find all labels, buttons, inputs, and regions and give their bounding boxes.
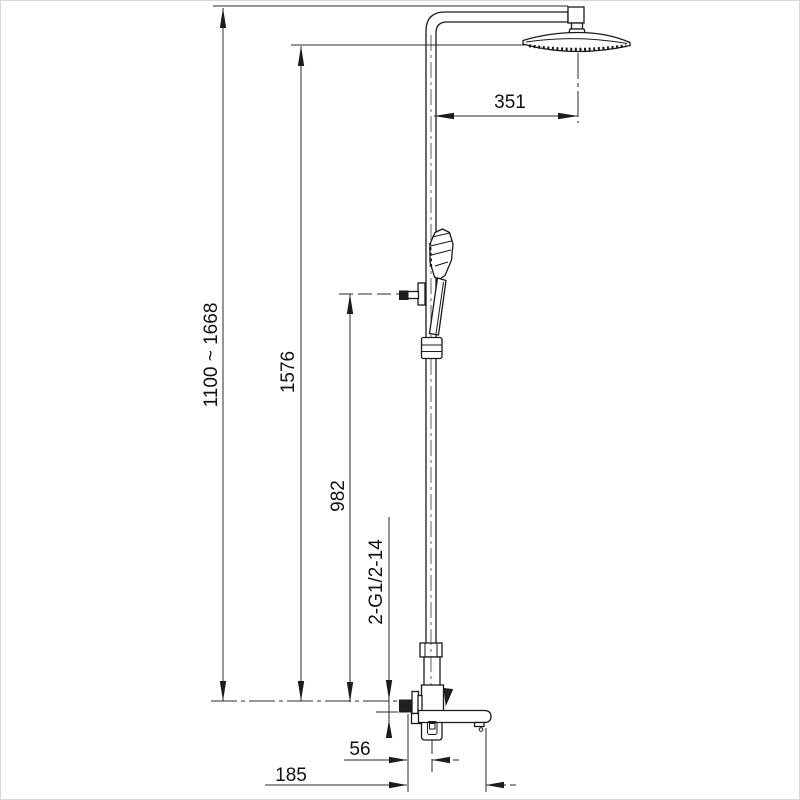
label-height-range: 1100 ~ 1668 (201, 303, 222, 408)
label-thread-spec: 2-G1/2-14 (366, 539, 387, 625)
label-hand-shower-height: 982 (328, 480, 349, 512)
label-spout-reach: 185 (275, 765, 307, 786)
spout-drip (479, 728, 483, 732)
label-spout-offset: 56 (349, 739, 370, 760)
overhead-shower-head (523, 33, 630, 52)
holder-knob (400, 291, 409, 300)
diverter-lever (444, 689, 453, 705)
technical-drawing: 1100 ~ 1668 1576 982 2-G1/2-14 351 56 18… (0, 0, 800, 800)
dimension-overall-height (291, 45, 525, 701)
label-overall-height: 1576 (278, 351, 299, 393)
slide-bracket (422, 338, 443, 359)
hand-shower-holder (400, 283, 426, 305)
label-arm-reach: 351 (494, 92, 526, 113)
valve-knob (400, 700, 412, 712)
shower-system-diagram: 1100 ~ 1668 1576 982 2-G1/2-14 351 56 18… (1, 1, 799, 799)
